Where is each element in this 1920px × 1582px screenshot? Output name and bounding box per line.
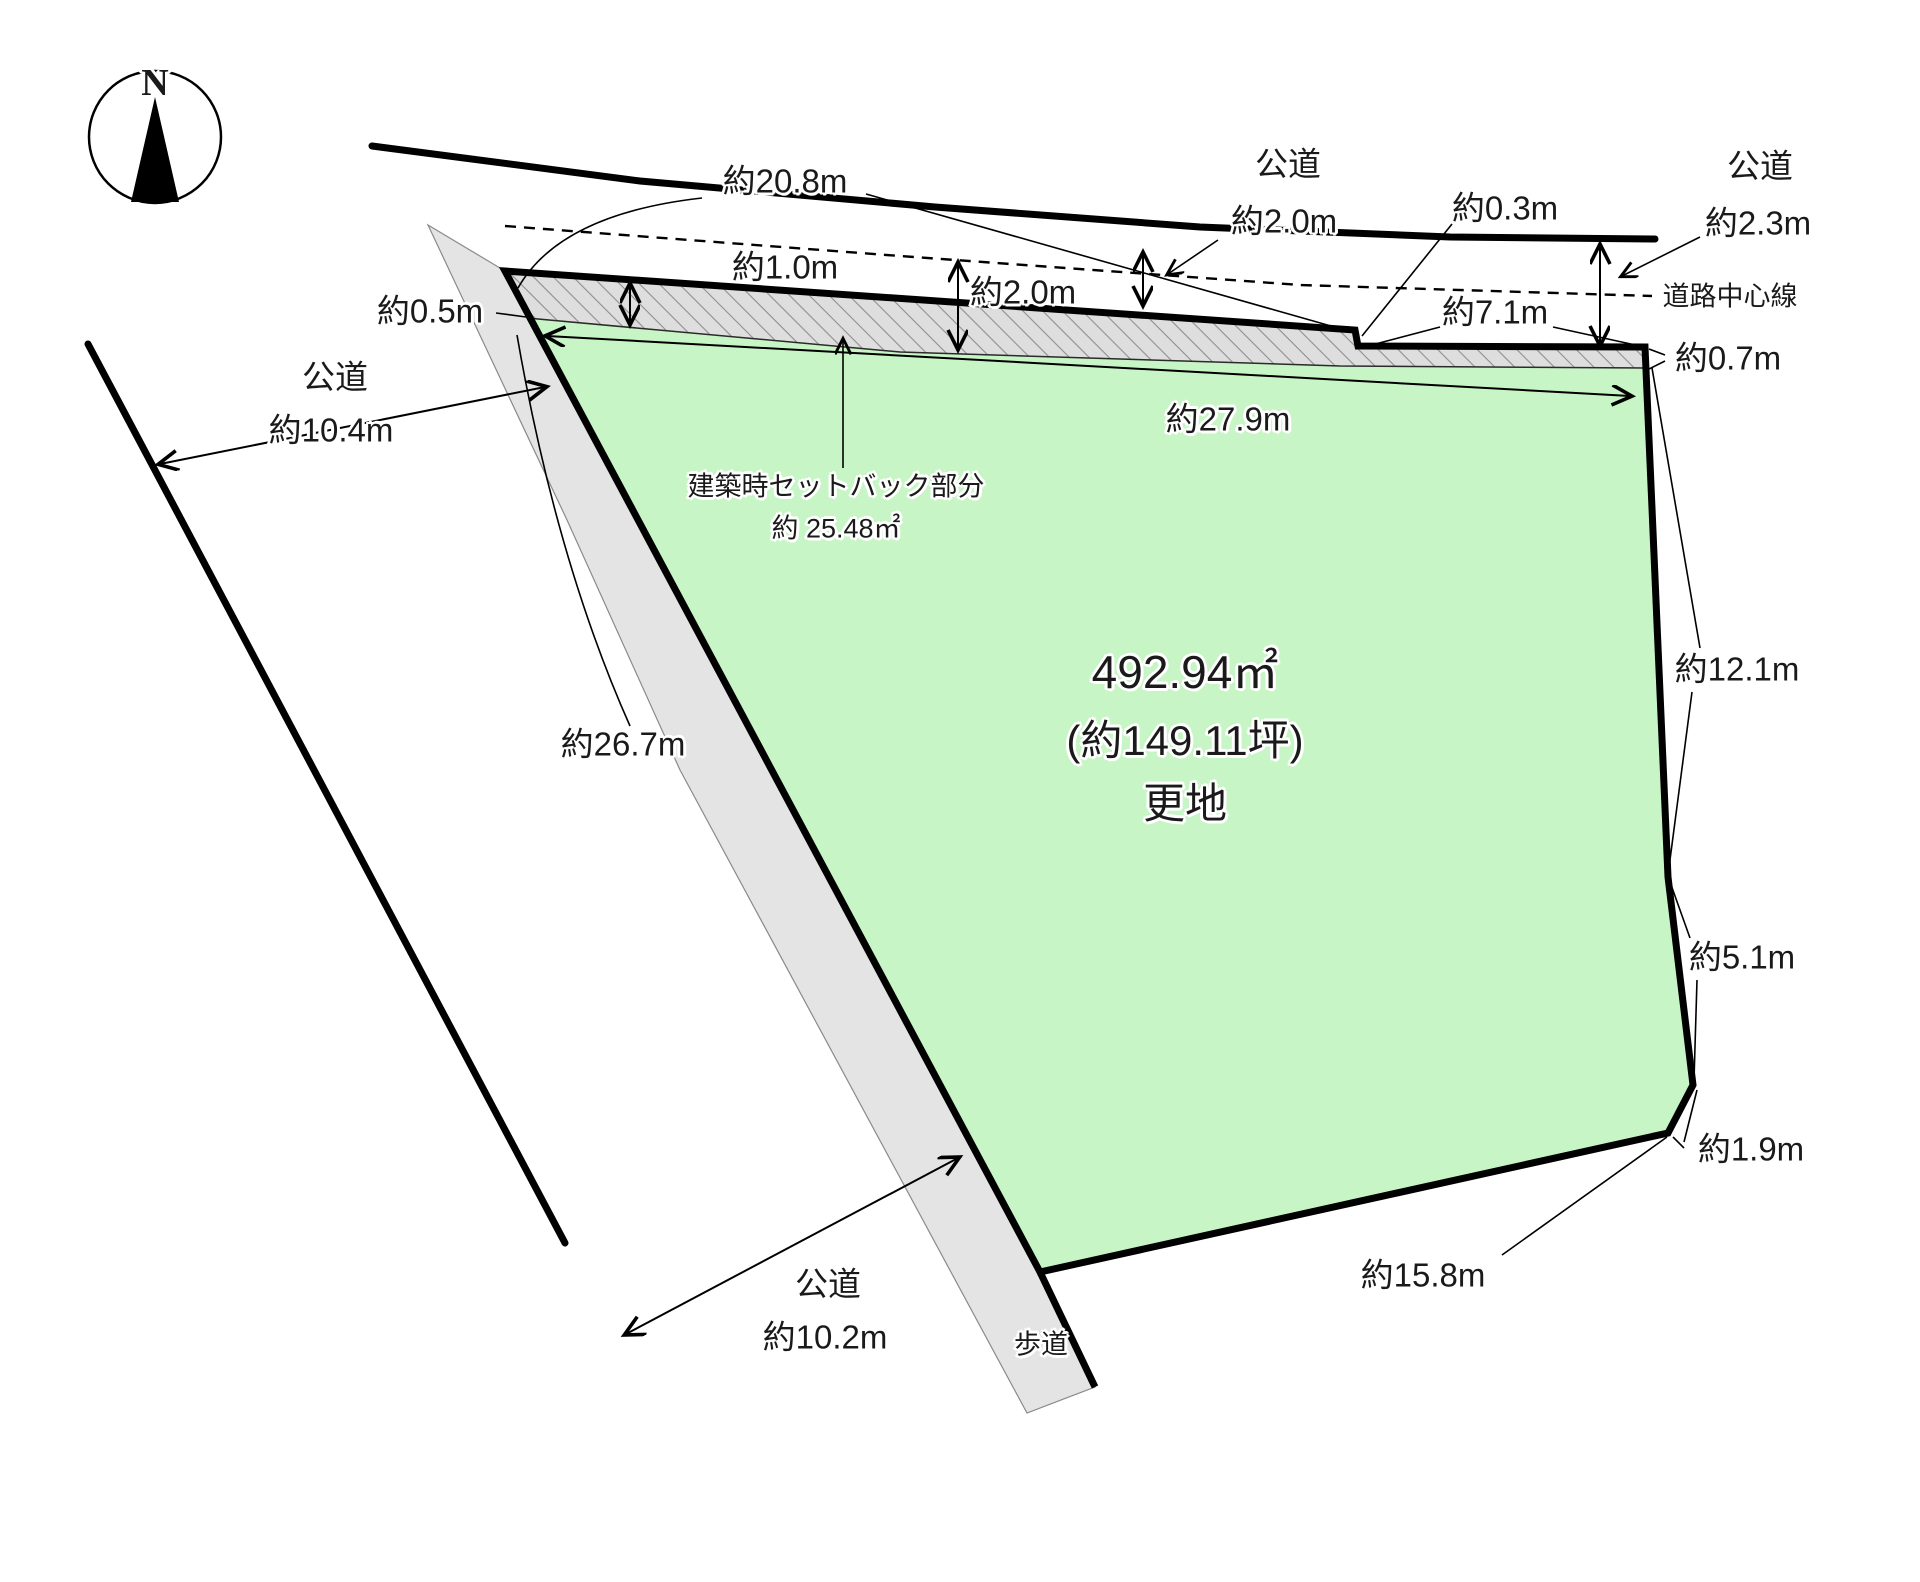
dim-frontage-total: 約20.8m <box>723 165 848 198</box>
dim-boundary-step: 約0.3m <box>1452 192 1558 225</box>
road-top-right-label: 公道 <box>1727 150 1793 183</box>
road-top-center-label: 公道 <box>1255 148 1321 181</box>
site-plan-canvas <box>0 0 1920 1582</box>
sidewalk-label: 歩道 <box>1014 1332 1068 1359</box>
dim-corner-bevel: 約1.9m <box>1698 1133 1804 1166</box>
dim-strip-right: 約0.7m <box>1675 342 1781 375</box>
dim-corner-left: 約0.5m <box>377 295 483 328</box>
dim-south-edge: 約15.8m <box>1361 1259 1486 1292</box>
setback-caption: 建築時セットバック部分 <box>688 474 985 501</box>
site-plan-diagram: N 約20.8m 約1.0m 公道 約2.0m 約0.3m 公道 約2.3m 道… <box>0 0 1920 1582</box>
road-bottom-label: 公道 <box>795 1268 861 1301</box>
west-road-edge <box>88 344 565 1243</box>
compass-n-letter: N <box>141 64 168 102</box>
parcel-area-tsubo: (約149.11坪) <box>1066 720 1303 762</box>
dim-road-left-width: 約10.4m <box>269 414 394 447</box>
road-centerline-label: 道路中心線 <box>1663 284 1798 311</box>
road-left-label: 公道 <box>302 361 368 394</box>
dim-road-top-center-width: 約2.0m <box>1231 205 1337 238</box>
dim-inner-frontage: 約27.9m <box>1166 403 1291 436</box>
dim-frontage-right: 約7.1m <box>1442 296 1548 329</box>
dim-setback-left-depth: 約1.0m <box>732 251 838 284</box>
dim-setback-mid-depth: 約2.0m <box>970 276 1076 309</box>
parcel-status: 更地 <box>1143 783 1227 825</box>
dim-east-edge-lower: 約5.1m <box>1689 941 1795 974</box>
dim-road-top-right-width: 約2.3m <box>1705 207 1811 240</box>
dim-west-edge: 約26.7m <box>561 728 686 761</box>
dim-road-bottom-width: 約10.2m <box>763 1321 888 1354</box>
parcel-area-m2: 492.94㎡ <box>1092 649 1279 695</box>
setback-area: 約 25.48㎡ <box>771 516 900 543</box>
dim-east-edge-upper: 約12.1m <box>1675 653 1800 686</box>
